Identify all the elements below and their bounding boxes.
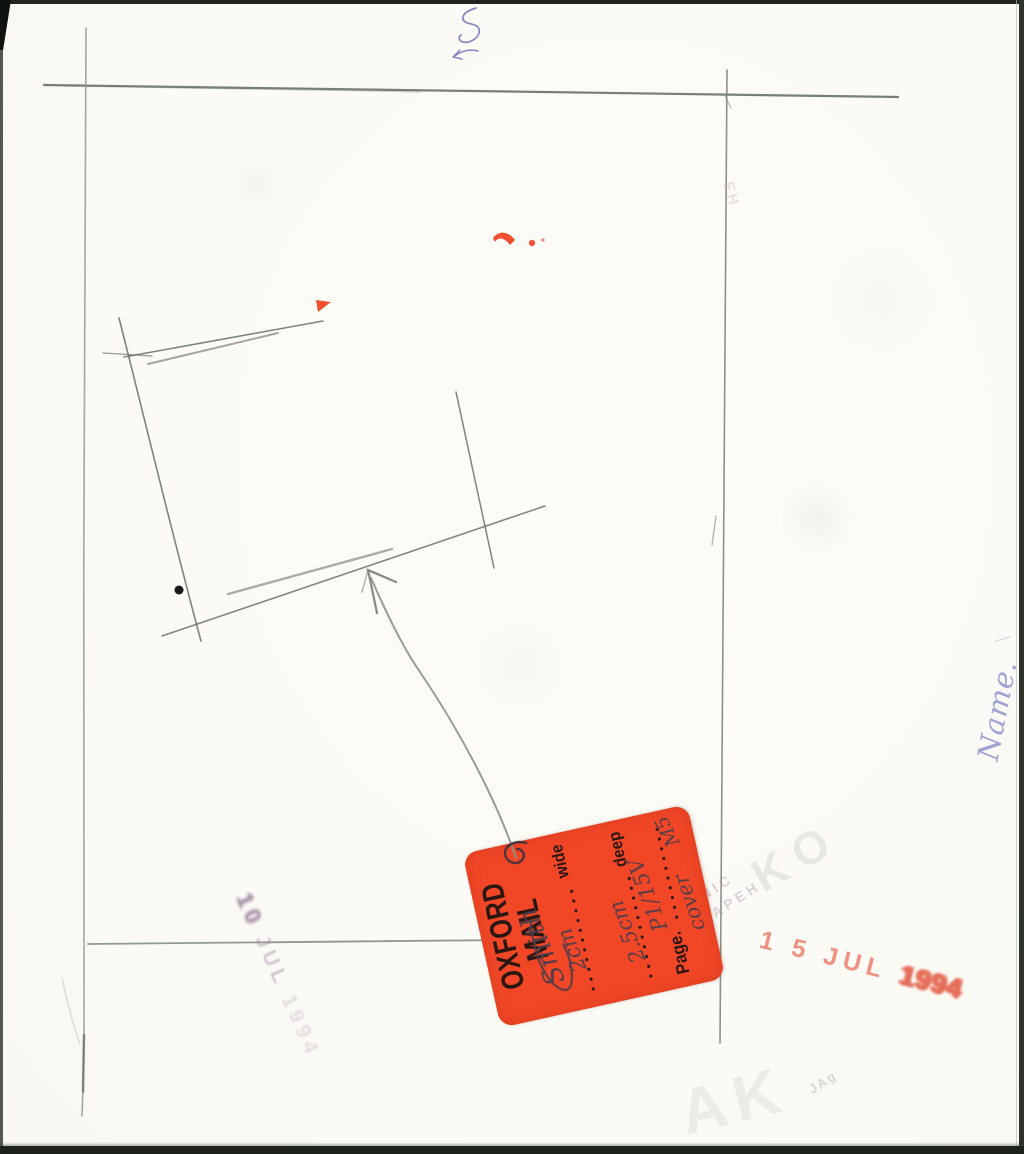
scan-corner-wedge	[0, 0, 11, 50]
red-crayon-marks	[493, 233, 545, 247]
sketch-box-bottom-edge	[162, 506, 545, 636]
ghost-watermark-top-right: FH	[720, 180, 743, 209]
orange-triangle-mark	[316, 300, 331, 312]
press-photo-back: KO NIC APEH AK JAg FH 10 JUL 1994 1 5 JU…	[0, 0, 1024, 1154]
left-crop-line-dark-segment	[83, 1035, 84, 1092]
sketch-box-top-edge	[124, 321, 323, 357]
oxford-mail-sticker: OXFORD MAIL Smith wide 2cm deep 2.5cm Pa…	[462, 804, 725, 1028]
handwritten-5-squiggle	[453, 8, 479, 59]
stray-hair-stroke	[62, 978, 80, 1044]
sketch-box-corner-tick	[103, 353, 152, 356]
ghost-watermark-line2: APEH	[707, 876, 764, 924]
scan-edge-left	[0, 0, 3, 1154]
sketch-box-left-edge	[119, 318, 201, 641]
handwritten-name-label: Name.	[971, 659, 1023, 764]
page-field-label: Page.	[665, 929, 695, 976]
top-crop-line-ghost-stroke	[60, 86, 420, 92]
faint-ink-dash	[996, 637, 1010, 641]
left-crop-line	[82, 28, 86, 1116]
photo-edge-line	[1016, 0, 1017, 1154]
purple-date-stamp: 10 JUL 1994	[230, 888, 327, 1062]
purple-stamp-month: JUL	[250, 932, 293, 991]
arrow-head-spur	[362, 570, 368, 592]
sketch-box-right-edge	[456, 392, 494, 568]
red-stamp-year: 1994	[896, 959, 965, 1004]
purple-stamp-year: 1994	[277, 991, 325, 1061]
right-crop-line-flick	[725, 96, 731, 108]
purple-stamp-day: 10	[231, 888, 269, 931]
ghost-watermark-small: JAg	[806, 1068, 840, 1097]
red-date-stamp: 1 5 JUL 1994	[757, 924, 966, 1004]
scan-edge-top	[0, 0, 1024, 4]
arrow-head	[368, 570, 396, 613]
top-crop-line	[44, 85, 898, 97]
right-crop-line	[720, 70, 727, 1043]
red-stamp-date: 1 5 JUL	[757, 926, 890, 985]
scan-edge-right	[1019, 0, 1024, 1154]
black-ink-dot	[175, 586, 184, 595]
red-crayon-speck	[541, 238, 544, 241]
wide-field-label: wide	[547, 842, 574, 880]
sketch-box-bottom-edge-second-stroke	[228, 549, 392, 594]
red-crayon-dot	[529, 240, 535, 246]
ghost-watermark-bottom: AK	[672, 1052, 795, 1150]
sketch-box-top-edge-second-stroke	[148, 333, 278, 364]
red-crayon-dash	[493, 233, 515, 245]
sketch-crop-box	[103, 318, 545, 641]
scan-edge-bottom	[0, 1146, 1024, 1154]
arrow-shaft	[371, 578, 516, 858]
ghost-watermark-large: KO	[742, 810, 850, 903]
small-tick-mark	[712, 516, 716, 545]
